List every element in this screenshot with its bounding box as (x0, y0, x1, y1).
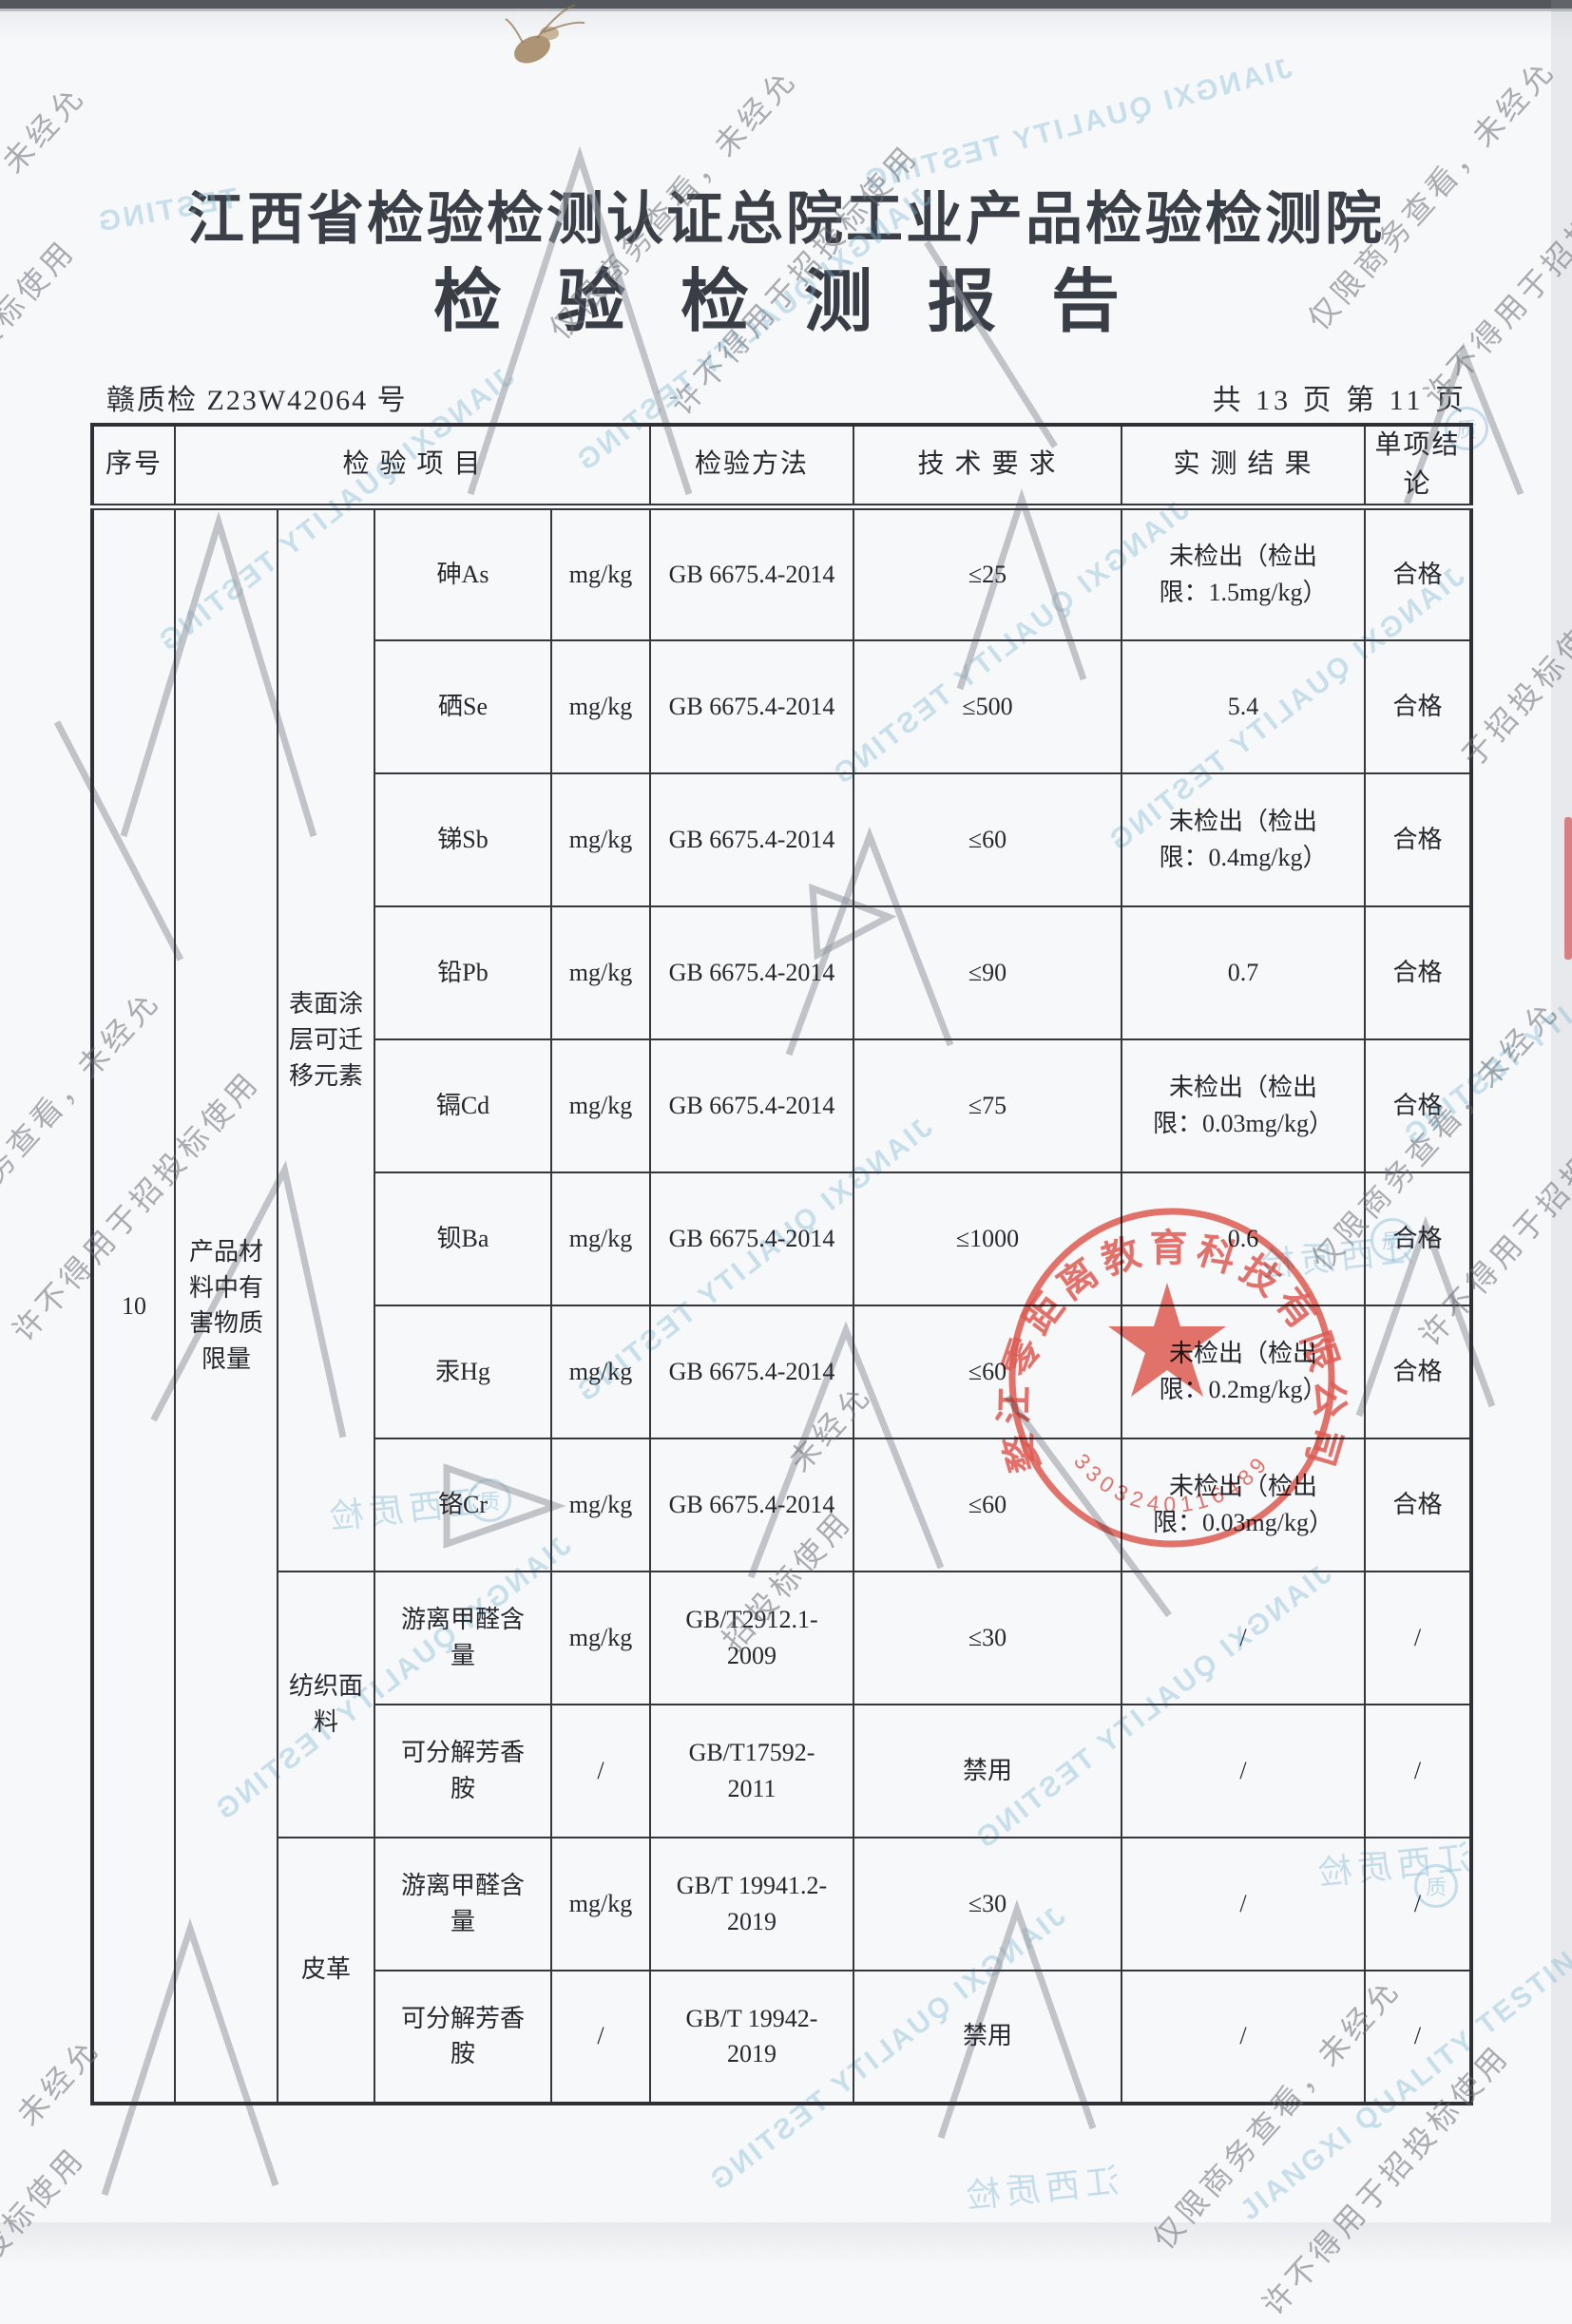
item-label: 硒Se (391, 689, 535, 725)
method-cell: GB/T17592-2011 (650, 1705, 853, 1838)
method-label: GB 6675.4-2014 (668, 1088, 835, 1124)
item-cell: 镉Cd (374, 1039, 551, 1172)
result-label: 0.7 (1149, 955, 1337, 991)
conclusion-cell: 合格 (1365, 906, 1471, 1039)
svg-text:3303240116489: 3303240116489 (1069, 1449, 1275, 1517)
table-header-row: 序号 检 验 项 目 检验方法 技 术 要 求 实 测 结 果 单项结论 (92, 425, 1471, 507)
method-cell: GB 6675.4-2014 (650, 906, 853, 1039)
group-cell-textile: 纺织面料 (278, 1572, 374, 1838)
result-cell: 5.4 (1121, 640, 1365, 773)
method-cell: GB 6675.4-2014 (650, 773, 853, 906)
scan-red-mark (1564, 817, 1572, 960)
method-cell: GB/T 19941.2-2019 (650, 1838, 853, 1971)
unit-cell: mg/kg (551, 1039, 650, 1172)
item-label: 镉Cd (391, 1088, 535, 1124)
result-label: / (1149, 1620, 1337, 1656)
item-label: 可分解芳香胺 (391, 2001, 535, 2072)
unit-cell: mg/kg (551, 1305, 650, 1438)
seq-cell: 10 (92, 507, 175, 2104)
requirement-cell: 禁用 (853, 1971, 1121, 2104)
requirement-cell: ≤30 (853, 1572, 1121, 1705)
unit-cell: / (551, 1971, 650, 2104)
result-cell: / (1121, 1572, 1365, 1705)
result-cell: / (1121, 1838, 1365, 1971)
conclusion-cell: 合格 (1365, 507, 1471, 640)
header-requirement: 技 术 要 求 (853, 425, 1121, 507)
method-label: GB 6675.4-2014 (668, 955, 835, 991)
method-label: GB 6675.4-2014 (668, 1221, 835, 1257)
table-row: 10 产品材料中有害物质限量 表面涂层可迁移元素 砷As mg/kg GB 66… (92, 507, 1471, 640)
stamp-number-text: 3303240116489 (1069, 1449, 1275, 1517)
unit-cell: mg/kg (551, 906, 650, 1039)
conclusion-cell: 合格 (1365, 773, 1471, 906)
company-stamp: 婺江零距离教育科技有限公司 3303240116489 (993, 1195, 1354, 1566)
group-label: 皮革 (286, 1952, 366, 1988)
item-cell: 游离甲醛含量 (374, 1838, 551, 1971)
method-cell: GB 6675.4-2014 (650, 640, 853, 773)
watermark-confidential: 招投标使用 (0, 2136, 94, 2295)
result-label: 未检出（检出限：0.03mg/kg） (1149, 1070, 1337, 1141)
item-label: 铬Cr (391, 1487, 535, 1523)
unit-cell: mg/kg (551, 773, 650, 906)
result-cell: / (1121, 1705, 1365, 1838)
item-label: 砷As (391, 557, 535, 593)
item-label: 铅Pb (391, 955, 535, 991)
scan-edge-strip (0, 0, 1572, 9)
unit-cell: mg/kg (551, 1572, 650, 1705)
header-item: 检 验 项 目 (175, 425, 650, 507)
item-label: 汞Hg (391, 1354, 535, 1390)
requirement-cell: ≤500 (853, 640, 1121, 773)
stamp-star (1108, 1283, 1226, 1397)
requirement-cell: 禁用 (853, 1705, 1121, 1838)
result-cell: 未检出（检出限：0.03mg/kg） (1121, 1039, 1365, 1172)
requirement-cell: ≤25 (853, 507, 1121, 640)
header-conclusion: 单项结论 (1365, 425, 1471, 507)
item-cell: 游离甲醛含量 (374, 1572, 551, 1705)
watermark-cn: 江西质检 (958, 2153, 1122, 2219)
group-cell-coating: 表面涂层可迁移元素 (278, 507, 374, 1572)
unit-cell: mg/kg (551, 507, 650, 640)
method-label: GB/T 19941.2-2019 (668, 1868, 835, 1939)
method-label: GB 6675.4-2014 (668, 557, 835, 593)
unit-cell: mg/kg (551, 1838, 650, 1971)
result-cell: 0.7 (1121, 906, 1365, 1039)
conclusion-cell: 合格 (1365, 1438, 1471, 1572)
result-label: 未检出（检出限：1.5mg/kg） (1149, 539, 1337, 610)
item-cell: 钡Ba (374, 1172, 551, 1305)
report-meta: 赣质检 Z23W42064 号 共 13 页 第 11 页 (0, 376, 1572, 414)
unit-cell: mg/kg (551, 1438, 650, 1572)
method-label: GB 6675.4-2014 (668, 1354, 835, 1390)
header-result: 实 测 结 果 (1121, 425, 1365, 507)
item-cell: 可分解芳香胺 (374, 1705, 551, 1838)
method-label: GB/T17592-2011 (668, 1735, 835, 1806)
category-label: 产品材料中有害物质限量 (186, 1234, 266, 1378)
scan-edge-strip-light (0, 9, 1572, 11)
item-cell: 铬Cr (374, 1438, 551, 1572)
conclusion-cell: / (1365, 1572, 1471, 1705)
result-cell: 未检出（检出限：0.4mg/kg） (1121, 773, 1365, 906)
report-number: 赣质检 Z23W42064 号 (106, 376, 408, 418)
conclusion-cell: / (1365, 1838, 1471, 1971)
scanned-report-page: { "page": { "org_title": "江西省检验检测认证总院工业产… (0, 0, 1572, 2222)
result-label: 未检出（检出限：0.4mg/kg） (1149, 804, 1337, 875)
item-cell: 砷As (374, 507, 551, 640)
item-label: 游离甲醛含量 (391, 1868, 535, 1939)
group-cell-leather: 皮革 (278, 1838, 374, 2104)
result-label: 5.4 (1149, 689, 1337, 725)
group-label: 表面涂层可迁移元素 (286, 986, 366, 1094)
scan-stain (506, 5, 585, 68)
method-label: GB/T 19942-2019 (668, 2001, 835, 2072)
unit-cell: mg/kg (551, 1172, 650, 1305)
item-label: 游离甲醛含量 (391, 1602, 535, 1673)
method-cell: GB 6675.4-2014 (650, 1172, 853, 1305)
item-cell: 汞Hg (374, 1305, 551, 1438)
item-cell: 锑Sb (374, 773, 551, 906)
item-cell: 硒Se (374, 640, 551, 773)
item-cell: 铅Pb (374, 906, 551, 1039)
item-label: 锑Sb (391, 822, 535, 858)
unit-cell: / (551, 1705, 650, 1838)
requirement-cell: ≤60 (853, 773, 1121, 906)
requirement-cell: ≤30 (853, 1838, 1121, 1971)
result-label: / (1149, 1886, 1337, 1922)
item-cell: 可分解芳香胺 (374, 1971, 551, 2104)
method-label: GB 6675.4-2014 (668, 689, 835, 725)
item-label: 钡Ba (391, 1221, 535, 1257)
requirement-cell: ≤75 (853, 1039, 1121, 1172)
requirement-cell: ≤90 (853, 906, 1121, 1039)
conclusion-cell: 合格 (1365, 640, 1471, 773)
method-cell: GB/T 19942-2019 (650, 1971, 853, 2104)
result-label: / (1149, 1753, 1337, 1789)
method-label: GB 6675.4-2014 (668, 822, 835, 858)
category-cell: 产品材料中有害物质限量 (175, 507, 278, 2104)
table-row: 皮革 游离甲醛含量 mg/kg GB/T 19941.2-2019 ≤30 / … (92, 1838, 1471, 1971)
header-method: 检验方法 (650, 425, 853, 507)
method-cell: GB 6675.4-2014 (650, 507, 853, 640)
conclusion-cell: / (1365, 1705, 1471, 1838)
group-label: 纺织面料 (286, 1668, 366, 1740)
item-label: 可分解芳香胺 (391, 1735, 535, 1806)
header-seq: 序号 (92, 425, 175, 507)
method-cell: GB 6675.4-2014 (650, 1039, 853, 1172)
result-cell: 未检出（检出限：1.5mg/kg） (1121, 507, 1365, 640)
unit-cell: mg/kg (551, 640, 650, 773)
